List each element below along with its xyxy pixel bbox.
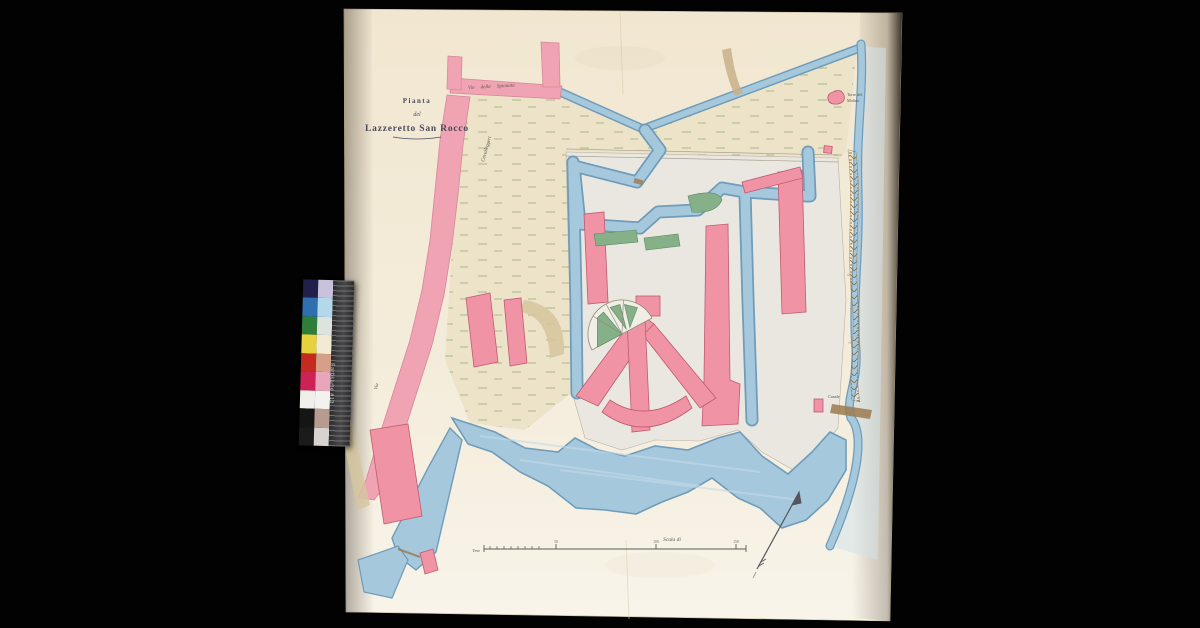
calibration-swatch [300,371,316,390]
calibration-swatch [301,353,317,372]
label-torre-line1: Torre del [847,92,863,97]
calibration-swatch [299,408,315,427]
calibration-label: Farbkarte #13 [328,363,335,404]
scale-tick-50: 50 [554,540,558,544]
calibration-swatch [317,317,333,336]
calibration-swatch [318,280,334,299]
calibration-swatch [317,298,333,317]
calibration-swatch [303,279,319,298]
title-line-2: del [413,112,421,118]
paper-stain [575,46,665,70]
scale-tick-150: 150 [733,540,739,544]
building-bar-left [584,212,608,304]
calibration-swatch [314,427,330,446]
scanned-map-photo: Pianta del Lazzeretto San Rocco Via dell… [0,0,1200,628]
calibration-swatch [316,335,332,354]
title-line-3: Lazzeretto San Rocco [365,124,469,134]
map-artwork: Pianta del Lazzeretto San Rocco Via dell… [0,0,1200,628]
scale-unit: Tese [472,548,480,553]
calibration-swatch [302,298,318,317]
calibration-swatch [302,316,318,335]
calibration-swatch [300,390,316,409]
calibration-card: Farbkarte #13 [299,279,355,446]
calibration-swatch [299,427,315,446]
title-line-1: Pianta [403,97,431,105]
building-bar-right [778,170,806,314]
scale-tick-100: 100 [653,540,659,544]
scale-title: Scala di [663,537,681,543]
label-canale: Canale [828,394,840,399]
calibration-swatch [314,409,330,428]
calibration-swatch [301,335,317,354]
label-torre-line2: Molino [847,98,859,103]
